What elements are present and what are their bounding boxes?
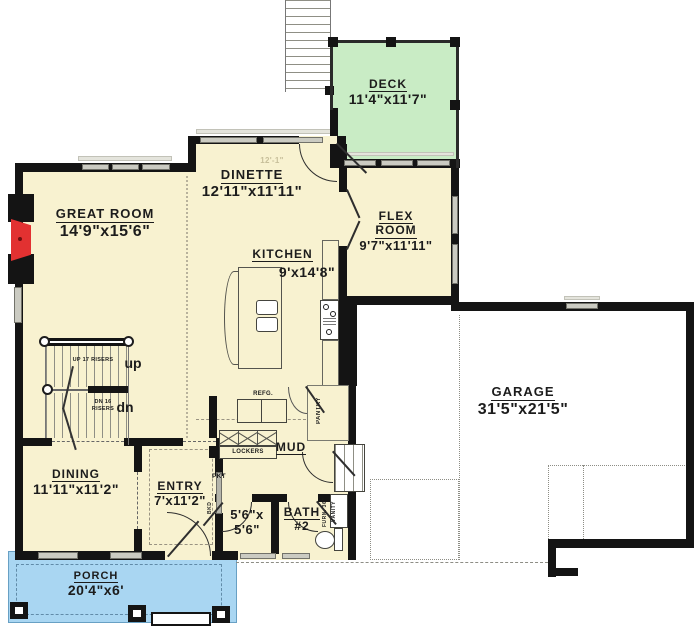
door-opening bbox=[222, 494, 252, 502]
window bbox=[82, 164, 109, 170]
garage-dotted-line bbox=[548, 465, 687, 466]
flex-room-label: FLEX ROOM 9'7"x11'11" bbox=[346, 210, 446, 253]
wall bbox=[348, 302, 356, 448]
dn-note-1: DN 16 bbox=[94, 399, 111, 405]
window bbox=[381, 160, 413, 166]
deck-label: DECK 11'4"x11'7" bbox=[328, 78, 448, 108]
front-dash-line bbox=[236, 562, 548, 563]
window bbox=[112, 164, 139, 170]
dinette-dims: 12'11"x11'11" bbox=[192, 184, 312, 201]
locker-x bbox=[239, 431, 258, 445]
mud-name: MUD bbox=[276, 441, 306, 455]
porch-post bbox=[212, 606, 230, 623]
flex-name-1: FLEX bbox=[379, 210, 414, 224]
window bbox=[417, 160, 450, 166]
porch-label: PORCH 20'4"x6' bbox=[36, 570, 156, 599]
window bbox=[452, 196, 458, 234]
faint-dimension-note: 12'-1" bbox=[252, 156, 292, 166]
stair-rail-inner bbox=[50, 389, 88, 391]
dn-risers-note: DN 16 RISERS bbox=[84, 399, 122, 412]
porch-steps bbox=[151, 612, 211, 626]
wall bbox=[134, 529, 142, 553]
range-grill bbox=[323, 318, 336, 326]
window bbox=[240, 553, 276, 559]
great-room-label: GREAT ROOM 14'9"x15'6" bbox=[45, 207, 165, 240]
kitchen-name: KITCHEN bbox=[252, 248, 312, 262]
pantry-label: PANTRY bbox=[316, 388, 328, 434]
garage-label: GARAGE 31'5"x21'5" bbox=[458, 385, 588, 418]
sink-basin bbox=[256, 300, 278, 315]
closet-dims-2: 5'6" bbox=[217, 523, 277, 538]
window bbox=[282, 553, 310, 559]
cased-opening-dash bbox=[137, 472, 138, 529]
window bbox=[452, 244, 458, 284]
stair-rail-inner bbox=[47, 341, 127, 343]
porch-name: PORCH bbox=[74, 570, 119, 583]
wall bbox=[556, 539, 694, 548]
refrigerator-label: REFG. bbox=[245, 391, 281, 398]
refrigerator-divider bbox=[261, 399, 262, 423]
door-opening bbox=[287, 494, 318, 502]
vanity-label: VANITY bbox=[331, 494, 340, 530]
burner bbox=[326, 329, 332, 335]
dining-dims: 11'11"x11'2" bbox=[16, 482, 136, 498]
pantry-area bbox=[307, 385, 349, 441]
exterior-stairs bbox=[285, 0, 331, 92]
sink-basin bbox=[256, 317, 278, 332]
garage-dims: 31'5"x21'5" bbox=[458, 401, 588, 419]
fireplace-surround bbox=[8, 194, 34, 222]
deck-post bbox=[328, 37, 338, 47]
deck-dims: 11'4"x11'7" bbox=[328, 92, 448, 108]
window bbox=[263, 137, 323, 143]
wall bbox=[548, 568, 578, 576]
entry-name: ENTRY bbox=[157, 480, 202, 494]
window-sill bbox=[564, 296, 600, 300]
flex-name-2: ROOM bbox=[375, 224, 416, 238]
window bbox=[142, 164, 170, 170]
deck-name: DECK bbox=[369, 78, 407, 92]
stairs-up bbox=[46, 346, 128, 387]
window bbox=[566, 303, 598, 309]
furnace-label: FURN. 36" bbox=[322, 494, 331, 530]
porch-post bbox=[128, 605, 146, 622]
garage-dotted-line bbox=[459, 315, 460, 560]
refrigerator bbox=[237, 399, 287, 423]
dinette-label: DINETTE 12'11"x11'11" bbox=[192, 168, 312, 200]
window bbox=[200, 137, 257, 143]
deck-post bbox=[450, 37, 460, 47]
dn-note-2: RISERS bbox=[92, 406, 114, 412]
cased-opening-dash bbox=[183, 441, 216, 442]
cased-opening bbox=[52, 438, 124, 446]
porch-post bbox=[10, 602, 28, 619]
porch-dims: 20'4"x6' bbox=[36, 583, 156, 599]
great-room-name: GREAT ROOM bbox=[56, 207, 155, 223]
great-room-dims: 14'9"x15'6" bbox=[45, 223, 165, 241]
window-sill bbox=[342, 152, 454, 156]
toilet-tank bbox=[334, 528, 343, 551]
kitchen-dims-label: 9'x14'8" bbox=[262, 265, 352, 281]
cased-opening-dash bbox=[52, 441, 124, 442]
stair-newel-post bbox=[123, 336, 134, 347]
dinette-name: DINETTE bbox=[221, 168, 284, 184]
window bbox=[110, 552, 142, 559]
window-sill bbox=[78, 156, 172, 161]
garage-name: GARAGE bbox=[491, 385, 554, 401]
bkd-label: BKD bbox=[207, 494, 215, 522]
bath2-number: #2 bbox=[294, 519, 309, 533]
deck-post bbox=[386, 37, 396, 47]
locker-x bbox=[220, 431, 239, 445]
burner bbox=[330, 311, 336, 317]
stair-newel-post bbox=[39, 336, 50, 347]
dining-label: DINING 11'11"x11'2" bbox=[16, 468, 136, 498]
fireplace-dot bbox=[18, 237, 22, 241]
stair-rail bbox=[88, 386, 128, 393]
flex-dims: 9'7"x11'11" bbox=[346, 239, 446, 254]
dining-name: DINING bbox=[52, 468, 100, 482]
window-sill bbox=[196, 129, 334, 134]
lockers-label: LOCKERS bbox=[219, 449, 277, 456]
ceiling-break-line bbox=[186, 176, 188, 438]
closet-dims-1: 5'6"x bbox=[217, 508, 277, 523]
garage-dotted-line bbox=[583, 465, 584, 543]
up-risers-note: UP 17 RISERS bbox=[56, 357, 130, 364]
cased-opening bbox=[183, 438, 216, 446]
kitchen-label: KITCHEN bbox=[240, 248, 325, 262]
window bbox=[14, 287, 22, 323]
wall bbox=[686, 302, 694, 548]
deck-post bbox=[450, 100, 460, 110]
floor-plan: DECK 11'4"x11'7" GREAT ROOM 14'9"x15'6" … bbox=[0, 0, 700, 627]
bath2-label: BATH #2 bbox=[276, 506, 328, 534]
burner bbox=[323, 304, 329, 310]
garage-dotted-rect bbox=[370, 479, 459, 560]
closet-label: 5'6"x 5'6" bbox=[217, 508, 277, 537]
window bbox=[38, 552, 78, 559]
stair-newel-post bbox=[42, 384, 53, 395]
bath2-name: BATH bbox=[284, 506, 320, 520]
kitchen-dims: 9'x14'8" bbox=[262, 265, 352, 281]
wall bbox=[209, 396, 217, 458]
pocket-door-label: PKT bbox=[206, 473, 232, 481]
